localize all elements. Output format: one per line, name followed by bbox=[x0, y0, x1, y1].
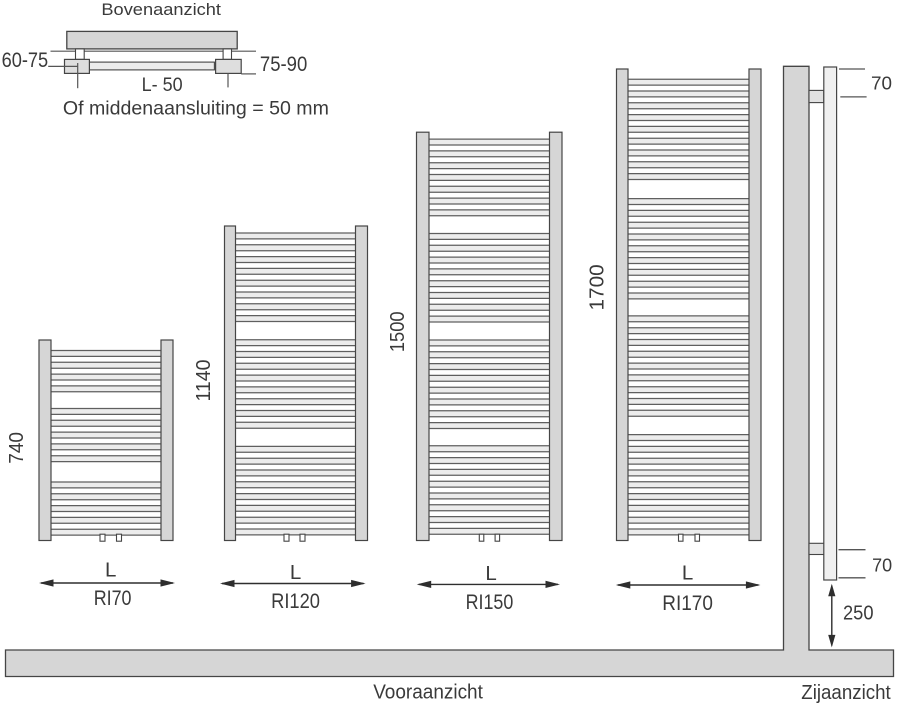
svg-text:RI70: RI70 bbox=[94, 586, 132, 610]
svg-text:L: L bbox=[105, 559, 116, 582]
svg-text:75-90: 75-90 bbox=[260, 53, 307, 76]
svg-text:1700: 1700 bbox=[586, 264, 609, 310]
svg-text:L: L bbox=[290, 561, 301, 584]
svg-text:Zijaanzicht: Zijaanzicht bbox=[801, 682, 891, 704]
svg-text:250: 250 bbox=[843, 603, 874, 625]
svg-text:Bovenaanzicht: Bovenaanzicht bbox=[101, 0, 221, 19]
svg-text:L: L bbox=[682, 562, 693, 585]
svg-text:1140: 1140 bbox=[192, 360, 215, 402]
svg-text:L: L bbox=[485, 562, 496, 585]
svg-text:Vooraanzicht: Vooraanzicht bbox=[373, 681, 483, 703]
svg-text:70: 70 bbox=[872, 556, 892, 576]
svg-text:Of middenaansluiting = 50 mm: Of middenaansluiting = 50 mm bbox=[63, 98, 329, 120]
svg-text:70: 70 bbox=[871, 74, 892, 94]
svg-text:L- 50: L- 50 bbox=[142, 75, 183, 96]
svg-text:740: 740 bbox=[5, 432, 28, 464]
svg-text:RI120: RI120 bbox=[271, 589, 320, 613]
svg-text:60-75: 60-75 bbox=[2, 49, 49, 72]
svg-text:RI150: RI150 bbox=[466, 590, 514, 614]
svg-text:1500: 1500 bbox=[386, 311, 409, 352]
svg-text:RI170: RI170 bbox=[662, 591, 713, 615]
